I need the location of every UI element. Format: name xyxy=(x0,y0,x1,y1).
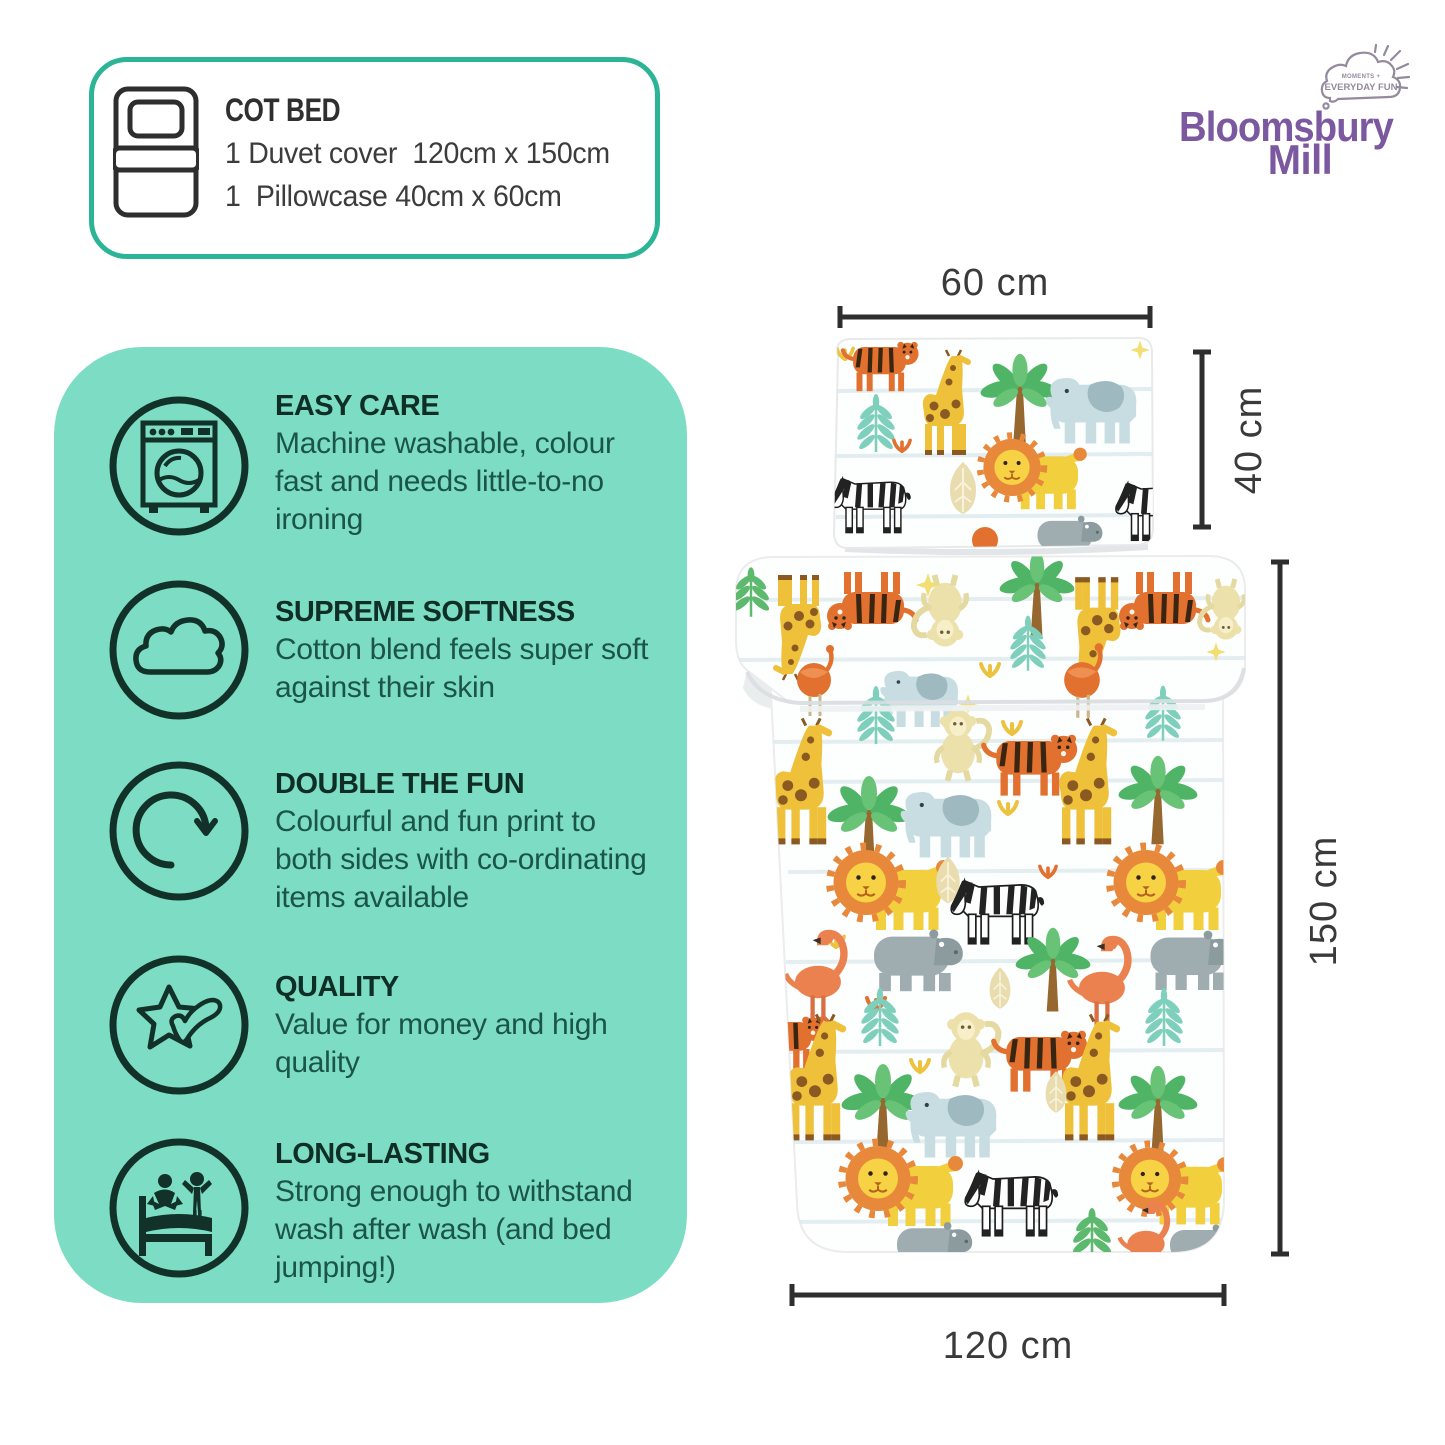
svg-text:150 cm: 150 cm xyxy=(1303,836,1345,967)
svg-text:40 cm: 40 cm xyxy=(1228,386,1270,494)
svg-text:120 cm: 120 cm xyxy=(943,1325,1074,1367)
svg-text:EVERYDAY FUN: EVERYDAY FUN xyxy=(1324,82,1397,93)
svg-text:60 cm: 60 cm xyxy=(941,262,1049,304)
svg-text:MOMENTS +: MOMENTS + xyxy=(1342,74,1381,80)
